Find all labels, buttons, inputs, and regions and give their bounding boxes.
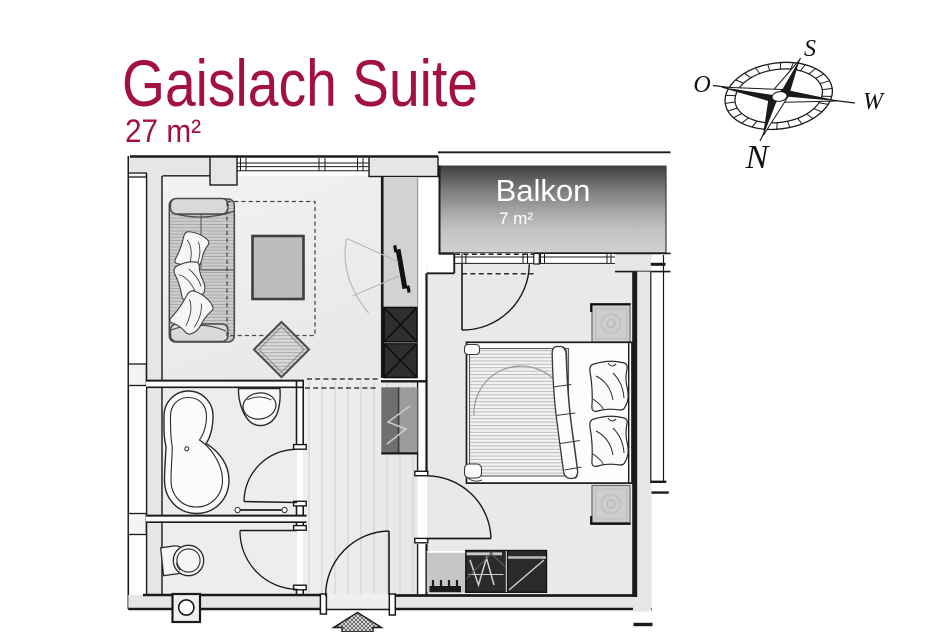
svg-text:Gaislach Suite: Gaislach Suite xyxy=(122,46,478,120)
svg-text:7 m²: 7 m² xyxy=(499,209,533,228)
svg-text:N: N xyxy=(745,139,771,176)
svg-text:S: S xyxy=(804,36,816,62)
svg-text:27 m²: 27 m² xyxy=(125,113,201,149)
svg-text:W: W xyxy=(863,89,885,115)
svg-text:O: O xyxy=(693,72,710,98)
svg-text:Balkon: Balkon xyxy=(496,173,591,208)
